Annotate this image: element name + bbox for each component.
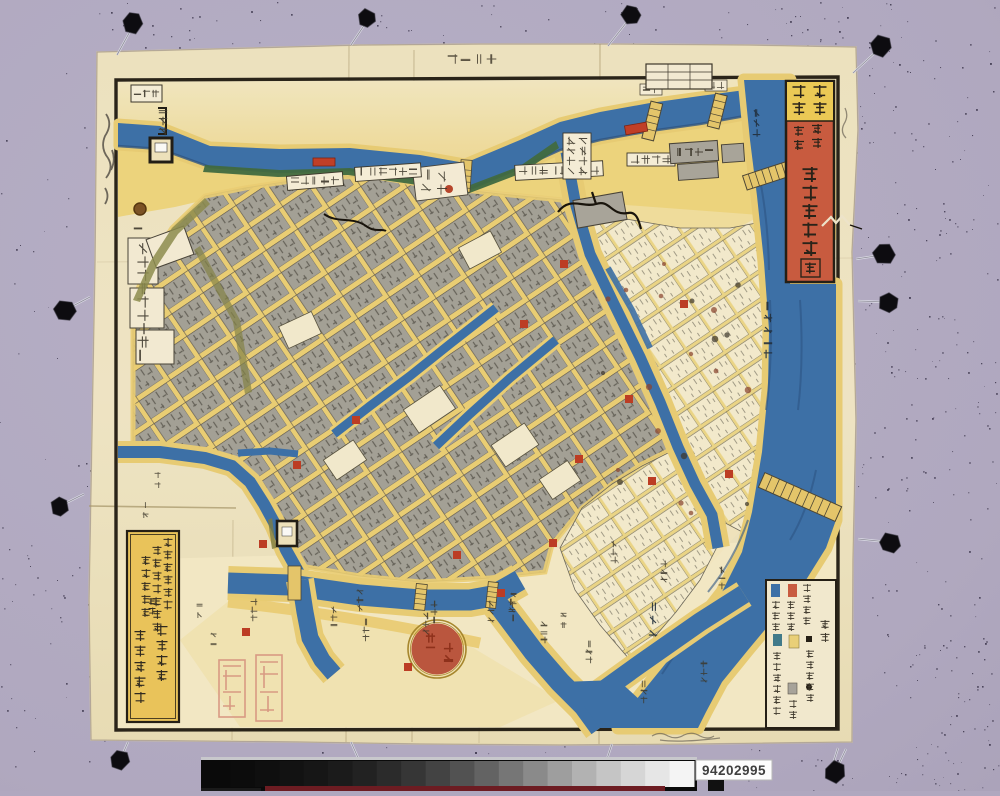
svg-text:94202995: 94202995 [702,763,766,778]
